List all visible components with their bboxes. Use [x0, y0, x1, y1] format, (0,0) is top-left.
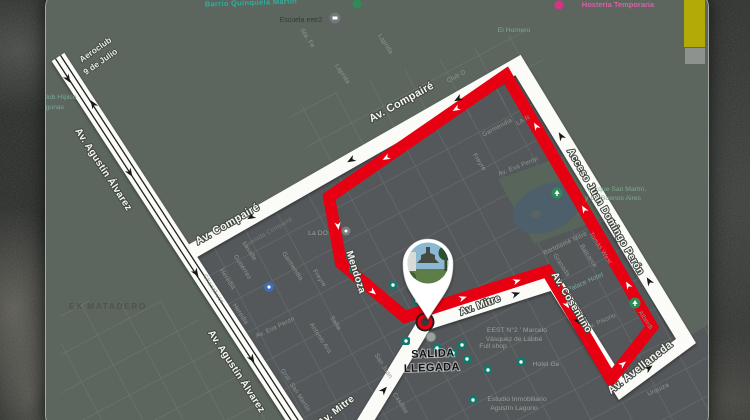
start-finish-label-line2: LLEGADA [404, 361, 460, 375]
start-ring [419, 316, 431, 328]
area-label-ex-matadero: EX MATADERO [69, 301, 147, 311]
park-icon [552, 188, 563, 199]
start-finish-label-line1: SALIDA [411, 347, 455, 361]
poi-label-el-hornero: El Hornero [498, 27, 531, 34]
gray-sticker [685, 48, 705, 64]
screenshot-stage: Laprida Laprida Sta. Fe Lavalle Gutiérre… [0, 0, 750, 420]
pink-poi-dot [555, 1, 564, 10]
anchor-dot [426, 332, 436, 342]
map: Laprida Laprida Sta. Fe Lavalle Gutiérre… [46, 0, 708, 420]
poi-label-hosteria-top: Hostería Temporaria [582, 0, 655, 9]
poi-label-club-hipico-2: Lagunas [46, 104, 65, 111]
poi-label-eest-1: EEST N°2 ' Marcelo [487, 326, 547, 334]
poi-label-club-hipico-1: Club Hípico [46, 94, 77, 101]
pond-island [531, 211, 541, 218]
poi-label-la-do: La DO [308, 230, 328, 237]
poi-label-eest-2: Vásquez de Labbé [486, 336, 543, 343]
poi-label-escuela: Escuela eetr2 [280, 17, 323, 24]
poi-label-hotel-ge: Hotel Ge [533, 361, 560, 368]
pharmacy-icon [264, 282, 274, 292]
poi-label-full-shop: Full shop [479, 343, 507, 350]
map-card: Laprida Laprida Sta. Fe Lavalle Gutiérre… [45, 0, 709, 420]
yellow-sticker [684, 0, 705, 47]
poi-label-estudio-2: Agustín Lagorio [490, 405, 538, 412]
poi-label-estudio-1: Estudio Inmobiliario [487, 396, 547, 403]
park-icon-2 [630, 298, 641, 309]
la-do-icon [342, 227, 351, 236]
school-icon [330, 13, 341, 24]
